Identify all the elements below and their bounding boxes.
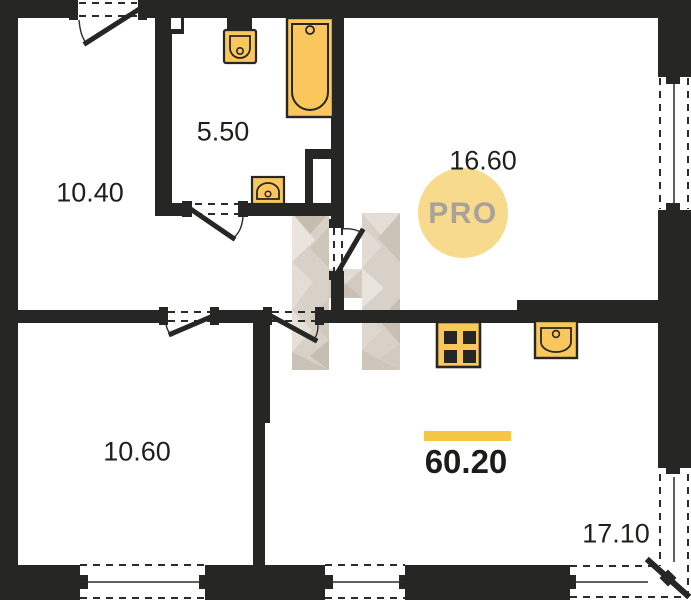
total-area-accent-bar — [424, 431, 511, 441]
total-area-label: 60.20 — [425, 443, 508, 481]
area-label-bathroom: 5.50 — [197, 117, 250, 148]
floor-plan-drawing — [0, 0, 691, 600]
walls — [0, 0, 691, 600]
stove-icon — [437, 322, 480, 367]
kitchen-sink-icon — [535, 321, 577, 358]
floor-plan: PRO 10.40 5.50 16.60 10.60 17.10 60.20 — [0, 0, 691, 600]
wall-pier-notch — [168, 18, 184, 34]
pro-watermark-text: PRO — [428, 197, 498, 231]
bathtub-icon — [287, 18, 333, 117]
bathroom-sink-icon — [252, 177, 284, 204]
h-logo-watermark — [292, 213, 400, 370]
area-label-top-left-room: 10.40 — [56, 178, 124, 209]
toilet-icon — [224, 18, 256, 63]
area-label-bottom-left-room: 10.60 — [103, 437, 171, 468]
area-label-kitchen: 17.10 — [582, 519, 650, 550]
area-label-living-room: 16.60 — [449, 146, 517, 177]
